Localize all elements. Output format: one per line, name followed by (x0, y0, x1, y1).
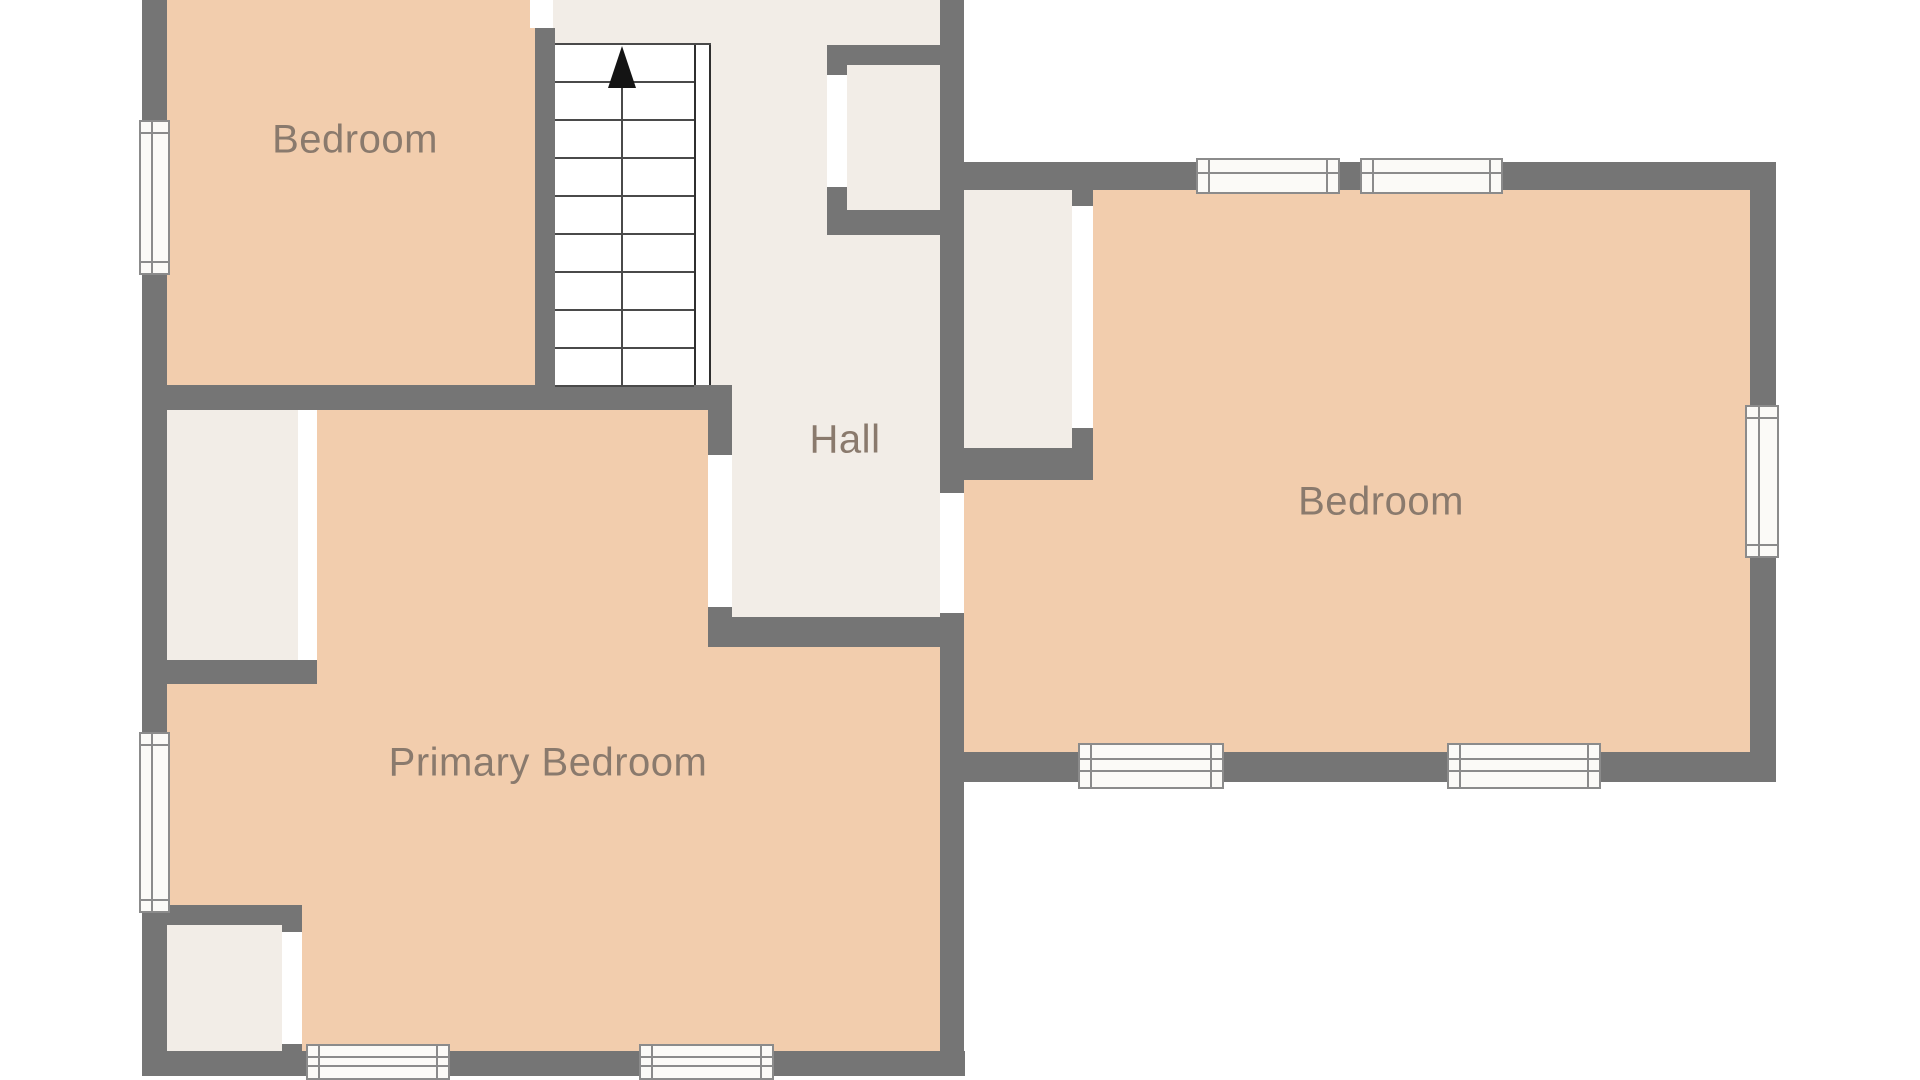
wall-hall-closet-top (827, 45, 964, 65)
window-rb-bottom-2 (1447, 743, 1601, 789)
floor-bedroom-right-upper (1093, 190, 1750, 480)
wall-hall-closet-jamb-bottom (827, 187, 847, 235)
wall-hall-west-upper (708, 385, 732, 455)
window-primary-bottom-2-frame-line (760, 1046, 762, 1078)
window-primary-bottom-2 (639, 1044, 774, 1080)
floor-primary-closet-upper (167, 410, 298, 660)
floor-primary-closet-lower (167, 925, 282, 1051)
window-rb-bottom-2-frame-line (1449, 758, 1599, 760)
window-left-top-frame-line (141, 261, 168, 263)
wall-primary-closet-lower-jamb-top (282, 905, 302, 932)
floor-bedroom-top-left (167, 0, 535, 385)
stair-tread-line (555, 309, 694, 311)
stair-tread-line (555, 43, 711, 45)
window-rb-bottom-1 (1078, 743, 1224, 789)
door-rb-closet (1072, 206, 1093, 428)
window-top-2-frame-line (1489, 160, 1491, 192)
stair-stringer (694, 45, 711, 385)
wall-hall-east-upper (940, 0, 964, 493)
stair-tread-line (555, 233, 694, 235)
wall-hall-closet-bottom (827, 210, 964, 235)
wall-stair-divider (535, 28, 555, 385)
floor-plan: Bedroom Hall Bedroom Primary Bedroom (0, 0, 1920, 1080)
window-left-bottom-frame-line (151, 734, 153, 911)
window-left-bottom (139, 732, 170, 913)
window-left-bottom-frame-line (141, 744, 168, 746)
window-rb-bottom-1-frame-line (1080, 758, 1222, 760)
window-left-top (139, 120, 170, 275)
window-primary-bottom-1 (306, 1044, 450, 1080)
wall-rb-closet-jamb-bottom (1072, 428, 1093, 448)
wall-bedroom1-bottom (142, 385, 708, 410)
wall-bedroom-right-top (940, 162, 1776, 190)
window-top-2-frame-line (1372, 160, 1374, 192)
door-bedroom-top-left (530, 0, 553, 28)
window-top-1 (1196, 158, 1340, 194)
window-primary-bottom-2-frame-line (641, 1065, 772, 1067)
door-primary-closet-lower (282, 932, 302, 1044)
wall-rb-closet-bottom (940, 448, 1093, 480)
window-left-top-frame-line (141, 132, 168, 134)
window-right-frame-line (1747, 417, 1777, 419)
wall-hall-east-lower (940, 613, 964, 1051)
stair-tread-line (555, 385, 694, 387)
stair-tread-line (555, 347, 694, 349)
stair-direction-line (621, 85, 623, 385)
wall-rb-closet-jamb-top (1072, 190, 1093, 206)
floor-stair-landing (553, 0, 713, 43)
wall-primary-closet-upper-bottom (142, 660, 317, 684)
window-right (1745, 405, 1779, 558)
window-right-frame-line (1758, 407, 1760, 556)
room-label-hall: Hall (810, 418, 881, 463)
window-top-2 (1360, 158, 1503, 194)
window-top-1-frame-line (1198, 172, 1338, 174)
window-rb-bottom-2-frame-line (1449, 770, 1599, 772)
window-rb-bottom-1-frame-line (1080, 770, 1222, 772)
window-primary-bottom-1-frame-line (308, 1065, 448, 1067)
window-top-2-frame-line (1362, 172, 1501, 174)
stair-up-arrow-icon (608, 46, 636, 88)
room-label-primary-bedroom: Primary Bedroom (389, 741, 708, 786)
window-top-1-frame-line (1208, 160, 1210, 192)
window-left-bottom-frame-line (141, 899, 168, 901)
room-label-bedroom-right: Bedroom (1298, 480, 1464, 525)
stair-tread-line (555, 157, 694, 159)
wall-bedroom-right-bottom (940, 752, 1776, 782)
wall-hall-bottom (708, 617, 944, 647)
window-left-top-frame-line (151, 122, 153, 273)
stair-tread-line (555, 271, 694, 273)
wall-primary-closet-lower-jamb-bottom (282, 1044, 302, 1051)
window-rb-bottom-1-frame-line (1210, 745, 1212, 787)
window-rb-bottom-2-frame-line (1587, 745, 1589, 787)
window-primary-bottom-1-frame-line (318, 1046, 320, 1078)
window-top-1-frame-line (1326, 160, 1328, 192)
door-hall-to-bedroom-right (940, 493, 964, 613)
window-primary-bottom-2-frame-line (641, 1056, 772, 1058)
window-primary-bottom-2-frame-line (651, 1046, 653, 1078)
window-right-frame-line (1747, 544, 1777, 546)
window-rb-bottom-1-frame-line (1090, 745, 1092, 787)
room-label-bedroom-top-left: Bedroom (272, 118, 438, 163)
wall-outer-bottom (142, 1051, 965, 1076)
floor-stairwell (555, 43, 711, 385)
window-rb-bottom-2-frame-line (1459, 745, 1461, 787)
door-hall-to-primary (708, 455, 732, 607)
window-primary-bottom-1-frame-line (436, 1046, 438, 1078)
floor-hall-closet (847, 65, 944, 210)
window-primary-bottom-1-frame-line (308, 1056, 448, 1058)
stair-tread-line (555, 195, 694, 197)
floor-bedroom-right-closet (964, 190, 1072, 448)
wall-hall-closet-jamb-top (827, 45, 847, 75)
door-hall-closet (827, 75, 847, 187)
stair-tread-line (555, 119, 694, 121)
door-primary-closet-upper (298, 410, 317, 660)
